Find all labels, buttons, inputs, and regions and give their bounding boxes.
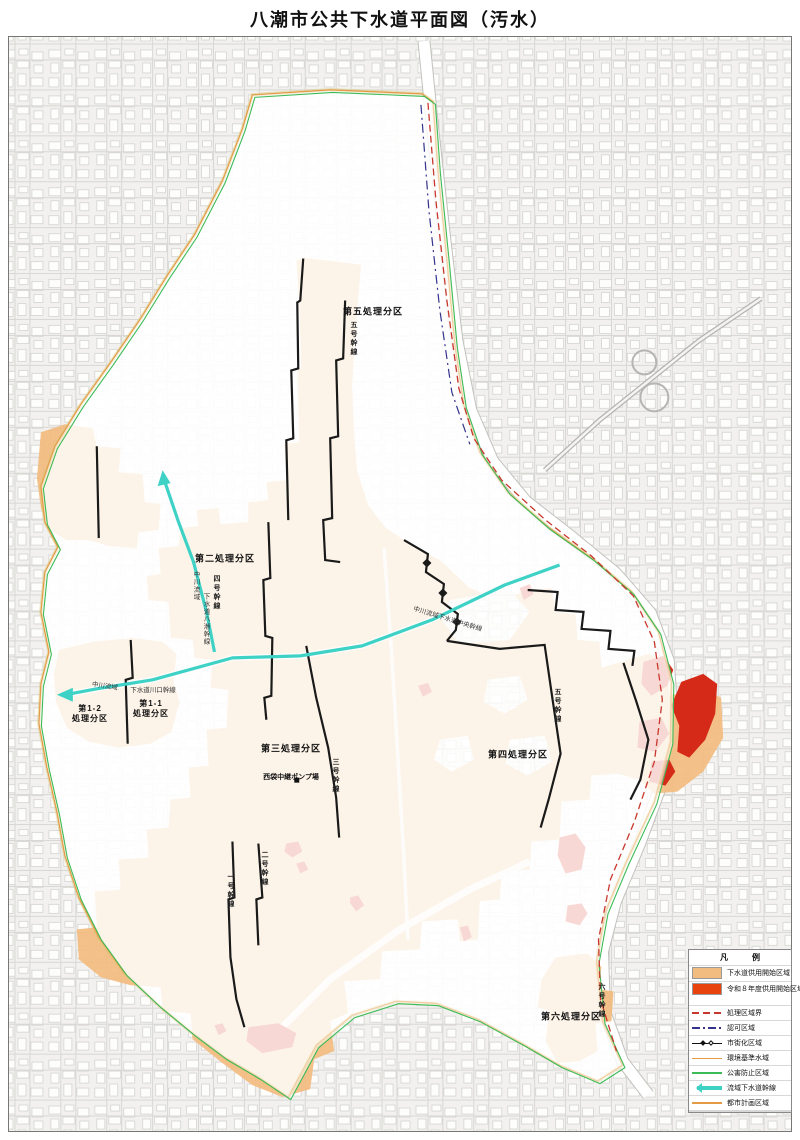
orange-line-sample bbox=[692, 1058, 722, 1059]
legend-row-pollution: 公害防止区域 bbox=[689, 1065, 791, 1080]
orange-thin-line-sample bbox=[692, 1102, 722, 1104]
legend-row-basin-trunk: 流域下水道幹線 bbox=[689, 1080, 791, 1095]
legend-row-env-standard: 環境基準水域 bbox=[689, 1050, 791, 1065]
legend-row-city-plan: 都市計画区域 bbox=[689, 1095, 791, 1110]
legend-row-urbanization: 市街化区域 bbox=[689, 1035, 791, 1050]
legend-row-served: 下水道供用開始区域 bbox=[689, 965, 791, 981]
dash-red-line-sample bbox=[692, 1012, 722, 1014]
legend-title: 凡 例 bbox=[689, 950, 791, 965]
legend-box: 凡 例 下水道供用開始区域 令和８年度供用開始区域 処理区域界 認可区域 市街化… bbox=[688, 949, 792, 1113]
new-area-swatch bbox=[692, 983, 722, 995]
map-canvas bbox=[9, 37, 791, 1131]
map-frame: 第五処理分区 第二処理分区 第三処理分区 第四処理分区 第六処理分区 第1-2 … bbox=[8, 36, 792, 1132]
page-title: 八潮市公共下水道平面図（汚水） bbox=[0, 6, 800, 32]
diamond-line-sample bbox=[692, 1039, 722, 1048]
green-line-sample bbox=[692, 1072, 722, 1074]
page: 八潮市公共下水道平面図（汚水） bbox=[0, 0, 800, 1140]
legend-row-new: 令和８年度供用開始区域 bbox=[689, 981, 791, 997]
legend-spacer bbox=[689, 997, 791, 1005]
served-area-swatch bbox=[692, 967, 722, 979]
legend-row-treatment-boundary: 処理区域界 bbox=[689, 1005, 791, 1020]
dashdot-navy-line-sample bbox=[692, 1027, 722, 1029]
cyan-arrow-line-sample bbox=[692, 1086, 722, 1090]
legend-empty-row bbox=[689, 1111, 791, 1112]
pump-station-marker bbox=[294, 778, 299, 783]
legend-row-approval: 認可区域 bbox=[689, 1020, 791, 1035]
